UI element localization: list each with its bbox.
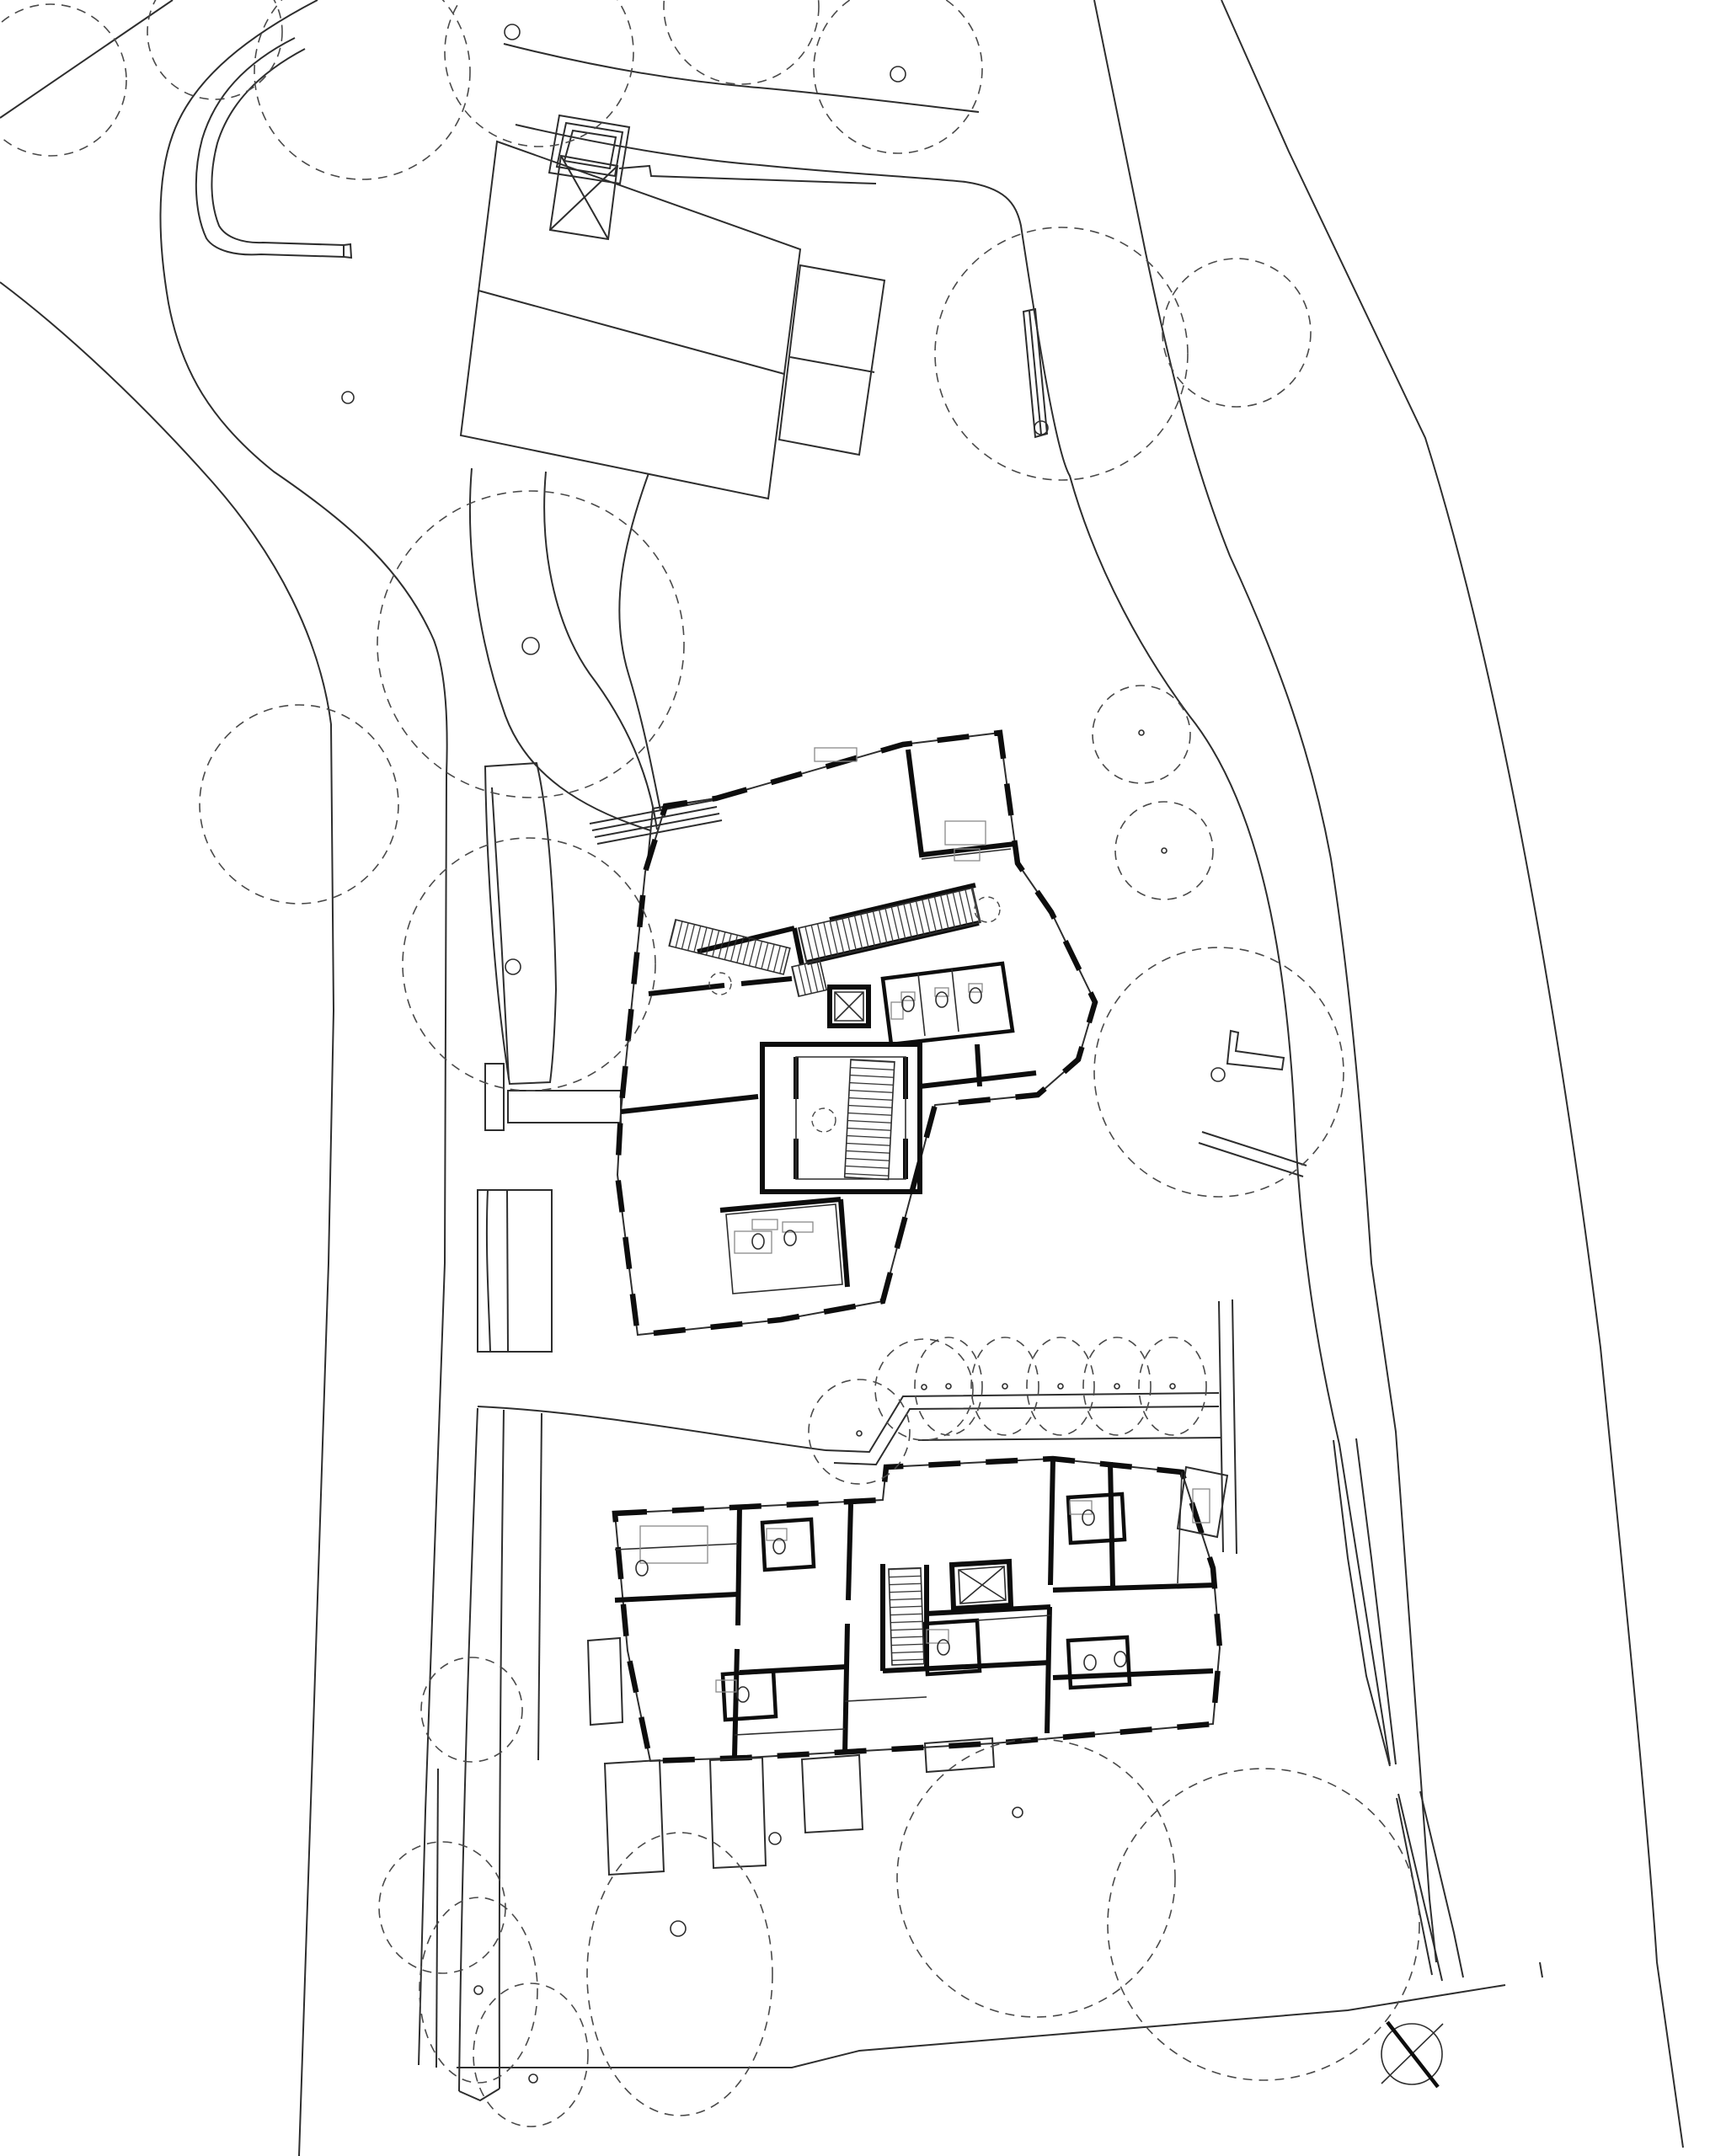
upper-building-walls-5 xyxy=(621,1097,758,1112)
survey-symbol-cross-heavy-0 xyxy=(1387,2022,1438,2087)
toilets-4 xyxy=(784,1230,796,1246)
roads-6 xyxy=(516,125,1390,1764)
tree-canopies-0 xyxy=(147,0,282,99)
lower-building-inner-7 xyxy=(735,1729,845,1735)
tree-canopies-small-2 xyxy=(812,1108,836,1132)
lower-building-walls-7 xyxy=(615,1594,738,1600)
fixture-rects-13 xyxy=(640,1526,708,1563)
lower-building-baths-3 xyxy=(1068,1637,1130,1688)
tree-trunks-2 xyxy=(342,392,354,403)
site-plan-canvas xyxy=(0,0,1726,2156)
tree-trunks-11 xyxy=(946,1384,951,1389)
tree-canopies-6 xyxy=(935,227,1188,480)
toilets-10 xyxy=(737,1687,749,1702)
upper-building-windows-0 xyxy=(617,733,1095,1335)
tree-trunks-12 xyxy=(1002,1384,1007,1389)
existing-building-9 xyxy=(564,131,616,168)
planters-6 xyxy=(507,1190,508,1352)
lower-building-baths-0 xyxy=(762,1519,814,1570)
lower-building-balconies-3 xyxy=(802,1755,863,1833)
fixture-rects-9 xyxy=(716,1680,736,1692)
lower-building-walls-3 xyxy=(845,1624,847,1753)
upper-building-windows xyxy=(617,733,1095,1335)
tree-canopies-5 xyxy=(814,0,982,153)
lower-building-balconies-5 xyxy=(1178,1467,1227,1537)
tree-canopies-16 xyxy=(915,1337,982,1435)
fixture-rects-4 xyxy=(752,1219,778,1230)
tree-trunks-0 xyxy=(505,24,520,40)
upper-building-walls-16 xyxy=(977,1044,980,1086)
fixture-rects-15 xyxy=(783,1222,813,1232)
lower-building-inner-4 xyxy=(845,1697,927,1701)
tree-canopies xyxy=(0,0,1419,2127)
upper-building-outline xyxy=(617,733,1095,1335)
stair-treads xyxy=(669,888,981,1665)
stair-treads-3 xyxy=(845,1059,895,1180)
tree-canopies-27 xyxy=(1108,1769,1419,2080)
tree-trunks-1 xyxy=(890,67,906,82)
upper-building-inner-3 xyxy=(918,974,925,1036)
garden-walls-7 xyxy=(1333,1440,1390,1766)
tree-canopies-10 xyxy=(403,838,655,1091)
roads-11 xyxy=(619,166,876,184)
lower-building-balconies-0 xyxy=(588,1638,623,1725)
garden-walls-5 xyxy=(1029,311,1041,435)
upper-building-outline-0 xyxy=(617,733,1095,1335)
upper-building-walls-7 xyxy=(741,979,792,984)
tree-trunks-3 xyxy=(522,638,539,654)
planters-3 xyxy=(508,1091,621,1123)
stair-treads-0 xyxy=(669,920,790,974)
tree-trunks-18 xyxy=(671,1921,686,1936)
existing-building xyxy=(461,115,884,499)
fixture-rects-8 xyxy=(767,1529,787,1540)
roads-7 xyxy=(1397,1798,1432,1975)
planters-5 xyxy=(487,1190,490,1352)
stair-treads-1 xyxy=(799,888,981,963)
tree-trunks-10 xyxy=(922,1385,927,1390)
garden-walls-0 xyxy=(826,1393,1219,1452)
tree-canopies-8 xyxy=(377,491,684,798)
fixture-rects-3 xyxy=(891,1002,903,1019)
lower-building-walls-0 xyxy=(738,1506,740,1625)
site-boundaries-4 xyxy=(436,1769,438,2068)
toilets-0 xyxy=(902,996,914,1011)
lower-building-inner-2 xyxy=(960,1566,1004,1604)
tree-trunks-9 xyxy=(857,1431,862,1436)
lower-building-walls-1 xyxy=(735,1649,737,1757)
site-boundaries-3 xyxy=(1540,1962,1542,1977)
lower-building-walls-4 xyxy=(1050,1459,1053,1585)
lower-building-walls-5 xyxy=(1047,1607,1050,1733)
tree-trunks-19 xyxy=(769,1833,781,1844)
tree-canopies-4 xyxy=(664,0,819,84)
toilets-8 xyxy=(1084,1655,1096,1670)
existing-building-1 xyxy=(478,291,784,374)
planters xyxy=(478,763,722,1352)
tree-trunks-8 xyxy=(1211,1068,1225,1081)
roads-4 xyxy=(344,244,351,258)
tree-canopies-9 xyxy=(200,705,398,904)
fixture-rects-7 xyxy=(1070,1501,1092,1514)
existing-building-3 xyxy=(790,357,874,372)
site-boundaries-1 xyxy=(1221,0,1683,2148)
fixture-rects-6 xyxy=(927,1630,948,1643)
planters-2 xyxy=(485,1064,504,1130)
toilets-9 xyxy=(1114,1652,1126,1667)
tree-canopies-7 xyxy=(1162,259,1311,407)
tree-canopies-19 xyxy=(1083,1337,1151,1435)
garden-walls-3 xyxy=(478,1406,826,1450)
tree-trunks-20 xyxy=(1013,1807,1023,1817)
toilets-2 xyxy=(970,988,981,1003)
plan-layers xyxy=(0,0,1683,2156)
tree-canopies-12 xyxy=(1115,802,1213,899)
roads-1 xyxy=(0,282,334,2156)
tree-trunks-17 xyxy=(529,2074,537,2083)
toilets-5 xyxy=(773,1539,785,1554)
toilets-7 xyxy=(1082,1510,1094,1525)
tree-canopies-17 xyxy=(971,1337,1039,1435)
fixture-rects-10 xyxy=(945,821,986,845)
tree-trunks-15 xyxy=(1170,1384,1175,1389)
tree-trunks-16 xyxy=(474,1986,483,1994)
tree-trunks xyxy=(342,24,1225,2083)
plan-sheet xyxy=(0,0,1726,2156)
garden-walls-2 xyxy=(918,1438,1221,1440)
tree-canopies-22 xyxy=(379,1842,505,1973)
stair-treads-2 xyxy=(792,960,826,996)
tree-canopies-1 xyxy=(0,4,126,156)
upper-building-walls-8 xyxy=(762,1044,920,1192)
tree-canopies-26 xyxy=(897,1739,1175,2017)
upper-building-walls-13 xyxy=(720,1199,841,1210)
lower-building-inner-5 xyxy=(977,1615,1050,1620)
site-boundaries-2 xyxy=(457,1985,1505,2068)
roads-18 xyxy=(500,1410,504,2089)
tree-canopies-21 xyxy=(421,1657,522,1762)
roads-15 xyxy=(544,472,657,830)
lower-building-balconies-2 xyxy=(710,1758,766,1868)
garden-walls xyxy=(478,309,1463,1981)
tree-canopies-11 xyxy=(1093,686,1190,783)
roads xyxy=(0,0,1436,2156)
tree-canopies-13 xyxy=(1094,947,1344,1197)
roads-3 xyxy=(211,49,344,245)
existing-building-0 xyxy=(461,141,800,499)
upper-building-inner-6 xyxy=(726,1204,842,1294)
fixture-rects-5 xyxy=(735,1231,772,1253)
survey-symbol-cross-heavy xyxy=(1387,2022,1438,2087)
lower-building-walls-6 xyxy=(1110,1462,1113,1587)
lower-building-baths-2 xyxy=(1068,1494,1125,1543)
planters-8 xyxy=(592,807,717,830)
roads-5 xyxy=(504,44,979,112)
toilets-6 xyxy=(938,1640,949,1655)
roads-0 xyxy=(160,0,446,2065)
lower-building-balconies-1 xyxy=(605,1760,664,1875)
tree-trunks-6 xyxy=(1139,730,1144,735)
tree-canopies-20 xyxy=(1139,1337,1206,1435)
tree-canopies-14 xyxy=(809,1380,910,1484)
tree-canopies-2 xyxy=(254,0,470,179)
tree-canopies-24 xyxy=(473,1983,588,2127)
tree-canopies-3 xyxy=(445,0,633,147)
tree-trunks-13 xyxy=(1058,1384,1063,1389)
lower-building-walls-11 xyxy=(1053,1671,1213,1678)
upper-building-inner-4 xyxy=(952,969,959,1032)
tree-trunks-14 xyxy=(1114,1384,1119,1389)
roads-20 xyxy=(538,1413,542,1760)
stair-treads-4 xyxy=(889,1568,924,1665)
site-boundaries xyxy=(0,0,1683,2148)
tree-trunks-4 xyxy=(505,959,521,974)
toilets-3 xyxy=(752,1234,764,1249)
roads-19 xyxy=(459,2089,500,2100)
roads-13 xyxy=(1232,1299,1237,1554)
tree-canopies-18 xyxy=(1027,1337,1094,1435)
lower-building-inner-3 xyxy=(615,1544,738,1550)
planters-1 xyxy=(492,787,509,1080)
site-boundaries-0 xyxy=(0,0,173,118)
planters-0 xyxy=(485,763,556,1084)
garden-walls-6 xyxy=(1227,1031,1284,1070)
upper-building-walls xyxy=(621,750,1036,1287)
tree-trunks-7 xyxy=(1162,848,1167,853)
toilets-1 xyxy=(936,992,948,1007)
lower-building-walls-10 xyxy=(1053,1585,1216,1590)
fixture-rects xyxy=(640,748,1210,1692)
garden-walls-9 xyxy=(1398,1794,1442,1981)
lower-building-walls-2 xyxy=(848,1504,851,1600)
upper-building-walls-0 xyxy=(908,750,1015,855)
